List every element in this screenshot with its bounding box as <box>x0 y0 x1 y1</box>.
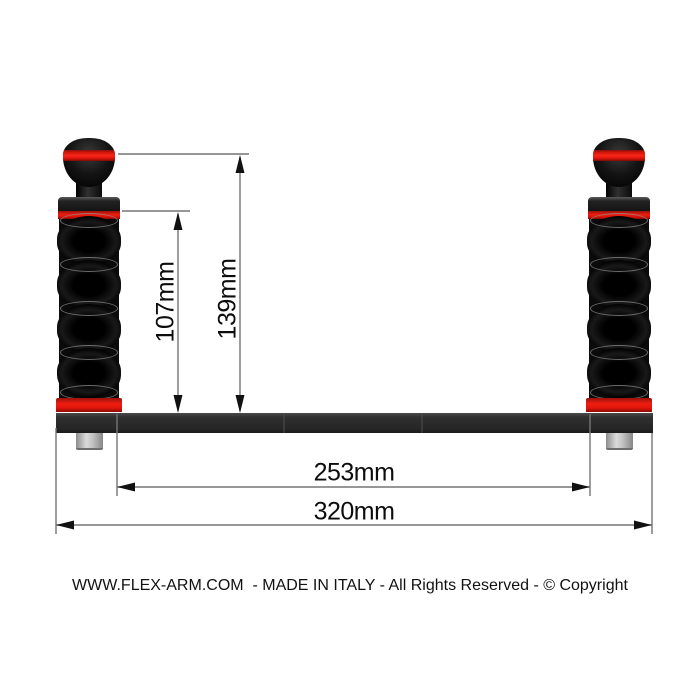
arrow-left-253 <box>117 483 135 492</box>
dim-label-139mm: 139mm <box>214 259 243 340</box>
dim-label-107mm: 107mm <box>152 262 181 343</box>
arrow-left-320 <box>56 521 74 530</box>
dim-label-320mm: 320mm <box>314 498 395 527</box>
arrow-up-107 <box>174 212 183 230</box>
dim-label-253mm: 253mm <box>314 459 395 488</box>
arrow-right-320 <box>634 521 652 530</box>
footer-copyright: WWW.FLEX-ARM.COM - MADE IN ITALY - All R… <box>0 577 700 595</box>
arrow-down-107 <box>174 395 183 413</box>
arrow-up-139 <box>236 155 245 173</box>
product-diagram: 107mm 139mm 253mm 320mm WWW.FLEX-ARM.COM… <box>0 0 700 700</box>
arrow-right-253 <box>572 483 590 492</box>
arrow-down-139 <box>236 395 245 413</box>
dimension-lines <box>0 0 700 700</box>
